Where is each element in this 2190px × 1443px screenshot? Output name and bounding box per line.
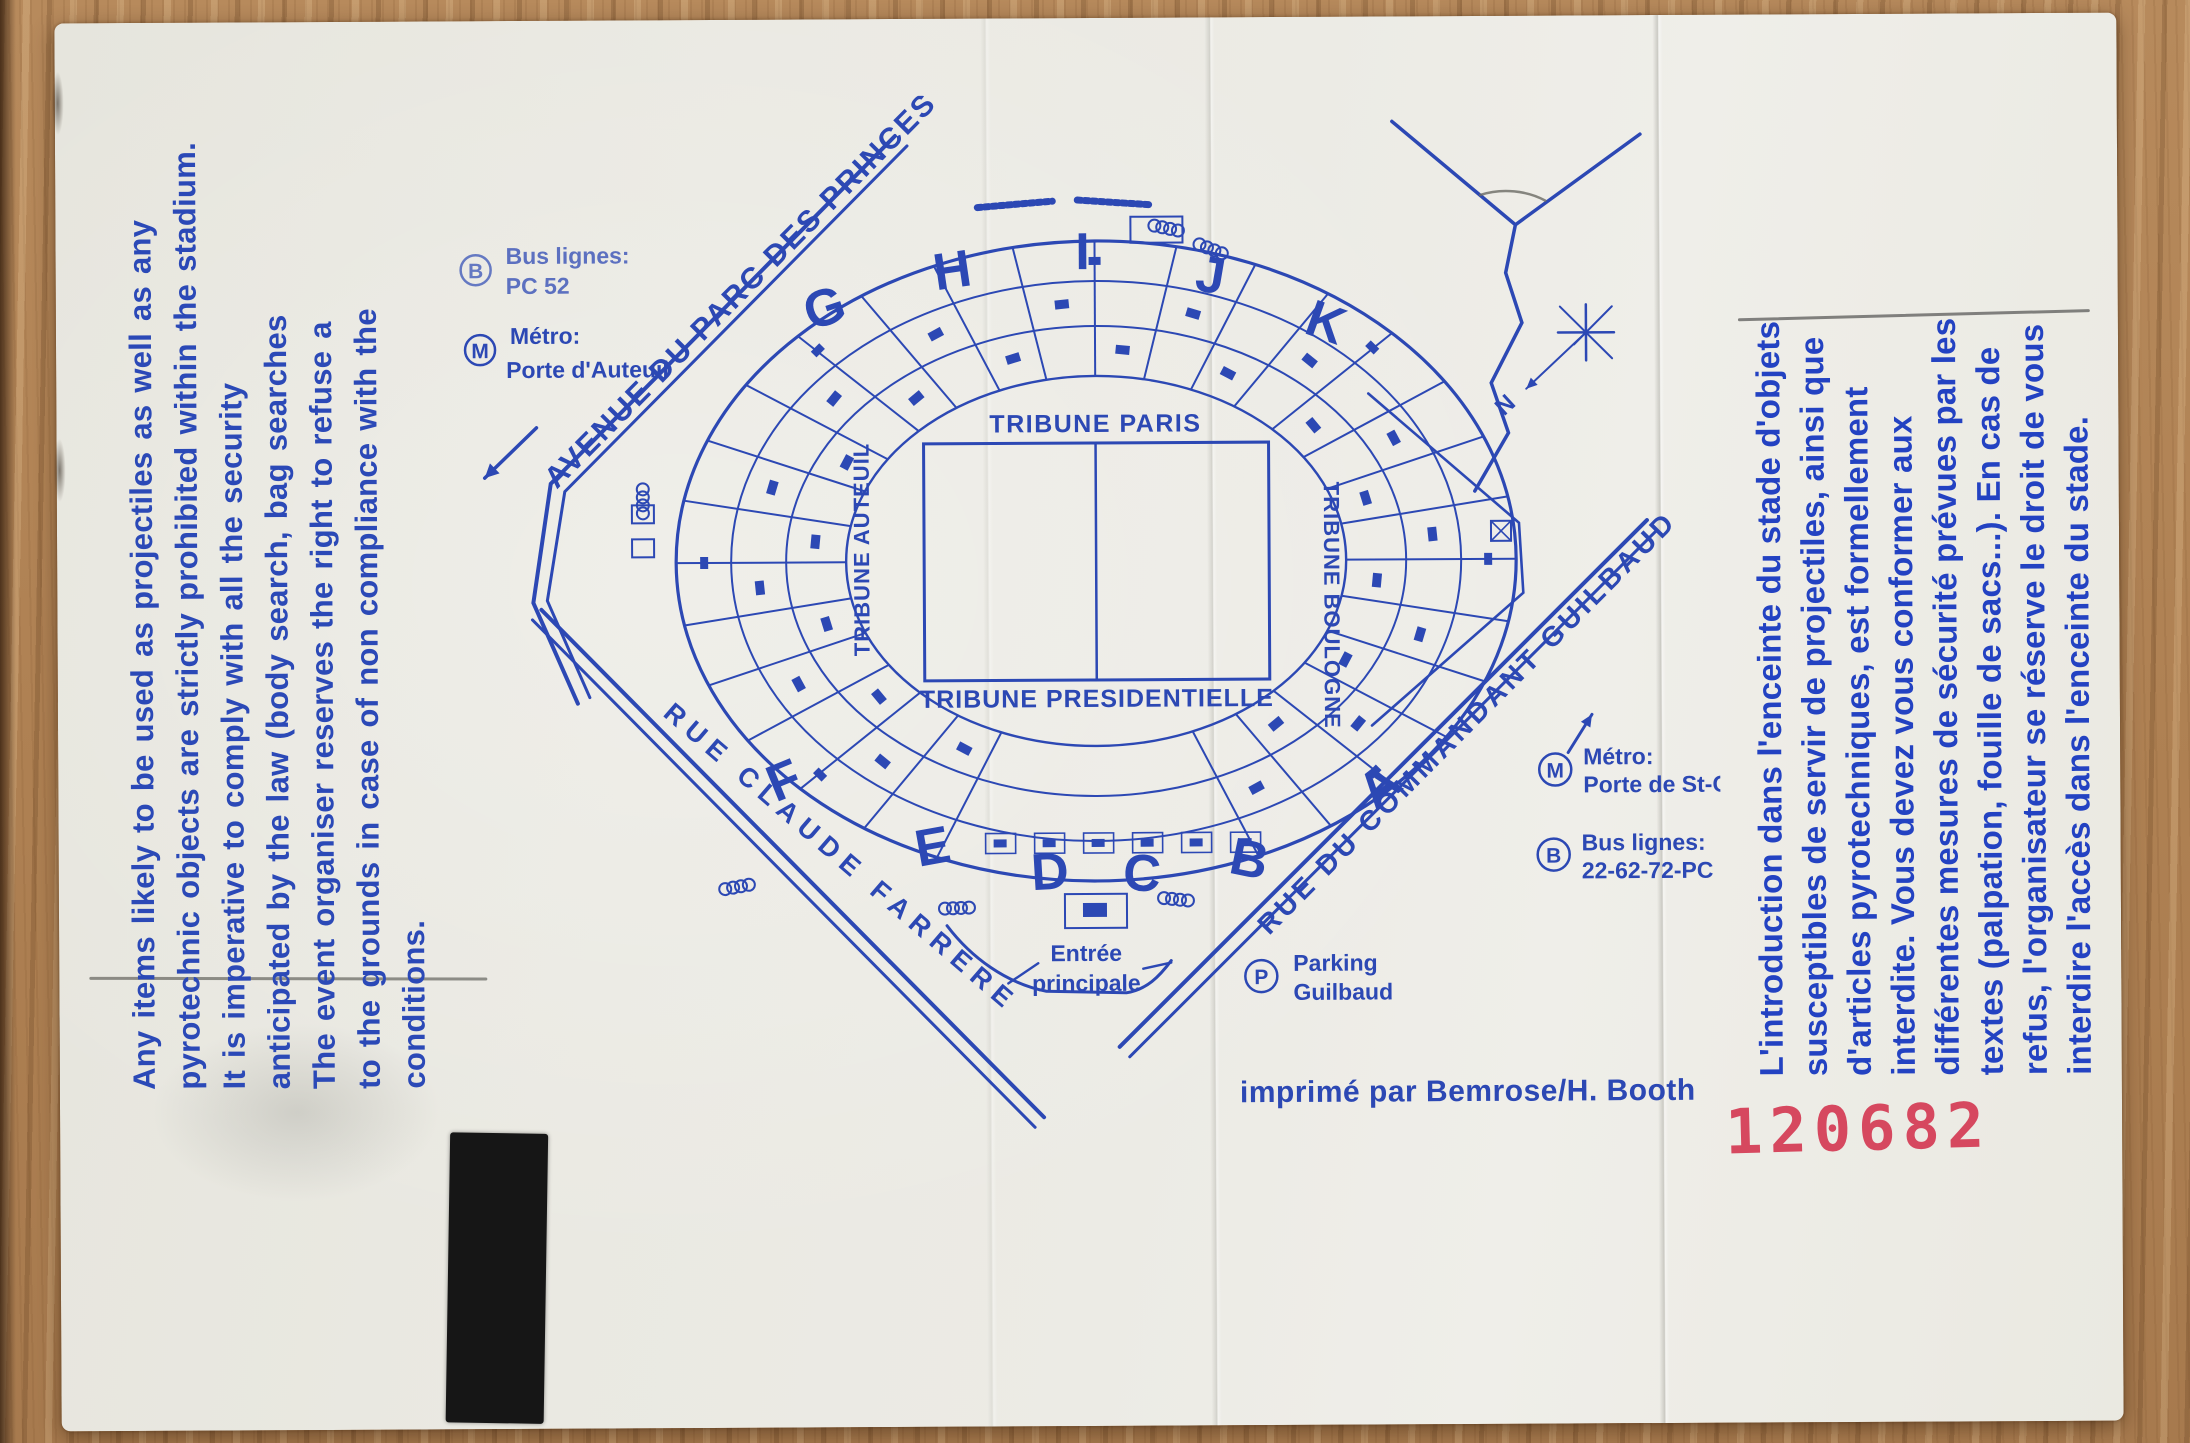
entrance-gate-mark bbox=[1083, 903, 1107, 917]
entrance-label-line2: principale bbox=[1032, 970, 1141, 997]
stand-divider bbox=[861, 296, 956, 409]
fr-line: différentes mesures de sécurité prévues … bbox=[1921, 70, 1970, 1075]
stand-letter: I bbox=[1075, 223, 1090, 281]
gate-mark bbox=[1386, 430, 1401, 447]
en-line: The event organiser reserves the right t… bbox=[297, 84, 347, 1089]
black-tape bbox=[446, 1132, 549, 1424]
gate-mark bbox=[927, 327, 944, 342]
gate-mark bbox=[810, 534, 820, 549]
gate-mark bbox=[1115, 345, 1130, 355]
gate-mark bbox=[1305, 417, 1321, 434]
metro-icon-letter: M bbox=[471, 340, 489, 363]
bus-nw-label: Bus lignes: bbox=[505, 242, 629, 269]
stand-letter: E bbox=[910, 815, 954, 878]
stand-letter: K bbox=[1298, 289, 1353, 356]
en-line: It is imperative to comply with all the … bbox=[207, 84, 257, 1089]
fr-line: refus, l'organisateur se réserve le droi… bbox=[2009, 70, 2058, 1075]
stand-divider bbox=[1326, 436, 1483, 488]
stand-letter: C bbox=[1121, 844, 1162, 904]
gate-mark bbox=[1372, 573, 1382, 588]
gate-mark bbox=[1301, 353, 1318, 369]
stand-divider bbox=[684, 500, 851, 527]
farrere-road-line bbox=[541, 607, 1044, 1120]
fr-line: d'articles pyrotechniques, est formellem… bbox=[1833, 71, 1882, 1076]
gate-mark bbox=[1414, 626, 1427, 642]
tribune-presidentielle-label: TRIBUNE PRESIDENTIELLE bbox=[920, 684, 1274, 714]
en-line: pyrotechnic objects are strictly prohibi… bbox=[162, 85, 212, 1090]
entrance-label-line1: Entrée bbox=[1050, 940, 1122, 966]
pitch-halfway-line bbox=[1096, 443, 1097, 680]
fr-line: L'introduction dans l'enceinte du stade … bbox=[1745, 71, 1794, 1076]
compass-rose bbox=[1526, 304, 1614, 388]
metro-nw-label: Métro: bbox=[510, 323, 580, 349]
metro-icon-letter: M bbox=[1546, 760, 1564, 783]
metro-se-value: Porte de St-Cloud bbox=[1583, 770, 1722, 797]
printer-credit: imprimé par Bemrose/H. Booth bbox=[1240, 1074, 1696, 1109]
conditions-text-fr: L'introduction dans l'enceinte du stade … bbox=[1745, 70, 2102, 1077]
gate-mark bbox=[1268, 716, 1285, 732]
turnstile-coil bbox=[939, 903, 951, 915]
stand-letter: H bbox=[929, 239, 975, 302]
avenue-label: AVENUE DU PARC DES PRINCES bbox=[538, 92, 943, 495]
gate-mark bbox=[700, 557, 708, 569]
en-line: to the grounds in case of non compliance… bbox=[342, 84, 392, 1089]
serial-number-stamp: 120682 bbox=[1724, 1089, 1992, 1169]
turnstile-coil bbox=[637, 507, 649, 519]
road-line bbox=[1473, 225, 1522, 491]
bus-se-label: Bus lignes: bbox=[1582, 829, 1706, 856]
fr-line: susceptibles de servir de projectiles, a… bbox=[1789, 71, 1838, 1076]
ticket-back: Any items likely to be used as projectil… bbox=[54, 13, 2123, 1432]
bus-nw-value: PC 52 bbox=[506, 273, 570, 299]
tribune-boulogne-label: TRIBUNE BOULOGNE bbox=[1319, 482, 1345, 729]
gate-mark bbox=[908, 390, 925, 406]
gate-mark bbox=[766, 480, 779, 496]
stand-divider bbox=[1342, 595, 1509, 622]
bus-icon-letter: B bbox=[1546, 845, 1561, 868]
gate-mark bbox=[1005, 352, 1021, 365]
turnstile-coil bbox=[1158, 892, 1170, 904]
avenue-road-line bbox=[531, 136, 898, 704]
pencil-mark bbox=[1480, 191, 1545, 201]
gate-mark bbox=[874, 754, 891, 770]
bus-se-value: 22-62-72-PC bbox=[1582, 857, 1714, 884]
vip-box-mark bbox=[1190, 838, 1203, 846]
gate-mark bbox=[1350, 715, 1366, 732]
bus-icon-letter: B bbox=[468, 260, 483, 283]
stand-divider bbox=[864, 716, 959, 829]
road-line bbox=[1392, 120, 1641, 225]
gate-mark bbox=[755, 580, 765, 595]
gate-mark bbox=[1359, 490, 1372, 506]
conditions-text-en: Any items likely to be used as projectil… bbox=[117, 83, 437, 1090]
gate-mark bbox=[826, 390, 842, 407]
edge-tear-shadow bbox=[52, 71, 64, 135]
gate-mark bbox=[1220, 366, 1237, 380]
edge-tear-shadow bbox=[54, 438, 66, 502]
tribune-auteuil-label: TRIBUNE AUTEUIL bbox=[849, 443, 875, 657]
stand-divider bbox=[1303, 381, 1445, 457]
gate-mark bbox=[820, 616, 833, 632]
gate-mark bbox=[871, 688, 887, 705]
parking-icon-letter: P bbox=[1254, 966, 1268, 989]
metro-se-label: Métro: bbox=[1583, 743, 1653, 769]
stand-letter: B bbox=[1225, 827, 1274, 891]
fr-line: interdite. Vous devez vous conformer aux bbox=[1877, 71, 1926, 1076]
stand-letter: D bbox=[1029, 842, 1070, 902]
stadium-map: AVENUE DU PARC DES PRINCES RUE CLAUDE FA… bbox=[427, 92, 1722, 1139]
fr-line: interdire l'accès dans l'enceinte du sta… bbox=[2053, 70, 2102, 1075]
gate-mark bbox=[1185, 307, 1201, 320]
gate-mark bbox=[1089, 257, 1101, 265]
gate-mark bbox=[1054, 299, 1069, 309]
stand-divider bbox=[1143, 247, 1177, 380]
turnstile-coil bbox=[719, 883, 731, 895]
turnstile-comb bbox=[977, 201, 1052, 207]
parking-value: Guilbaud bbox=[1293, 978, 1393, 1005]
vip-box-mark bbox=[1092, 839, 1105, 847]
fr-line: textes (palpation, fouille de sacs...). … bbox=[1965, 70, 2014, 1075]
stand-letter: J bbox=[1191, 245, 1229, 307]
wood-table: { "colors": { "ink": "#2c48b4", "stamp":… bbox=[0, 0, 2190, 1443]
parking-label: Parking bbox=[1293, 949, 1378, 975]
gate-mark bbox=[1427, 527, 1437, 542]
vip-box-mark bbox=[994, 839, 1007, 847]
farrere-label: RUE CLAUDE FARRERE bbox=[658, 697, 1024, 1018]
tribune-paris-label: TRIBUNE PARIS bbox=[989, 409, 1201, 438]
gate-mark bbox=[956, 741, 973, 755]
stand-divider bbox=[1236, 714, 1331, 827]
metro-nw-value: Porte d'Auteuil bbox=[506, 356, 669, 383]
en-line: anticipated by the law (body search, bag… bbox=[252, 84, 302, 1089]
stand-divider bbox=[747, 665, 889, 741]
gate-mark bbox=[1248, 780, 1265, 795]
gate-block bbox=[632, 539, 654, 557]
turnstile-comb bbox=[1077, 200, 1149, 205]
en-line: Any items likely to be used as projectil… bbox=[117, 85, 167, 1090]
stand-divider bbox=[709, 633, 866, 685]
gate-mark bbox=[1484, 553, 1492, 565]
gate-mark bbox=[791, 676, 806, 693]
